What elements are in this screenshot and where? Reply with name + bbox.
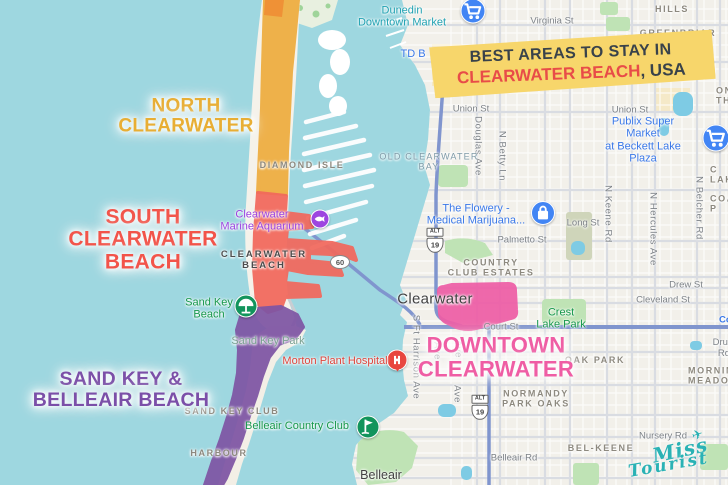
street-court-hwy-label: Cou — [719, 316, 728, 327]
shopping-cart-icon[interactable] — [703, 125, 728, 152]
poi-dunedin-downtown-market[interactable]: Dunedin Downtown Market — [358, 5, 446, 30]
street-ave-fragment-3: Ave — [451, 385, 462, 403]
poi-clearwater-marine-aquarium[interactable]: Clearwater Marine Aquarium — [220, 209, 303, 234]
poi-the-flowery[interactable]: The Flowery - Medical Marijuana... — [427, 203, 525, 228]
city-belleair: Belleair — [360, 468, 402, 482]
poi-crest-lake-park[interactable]: Crest Lake Park — [536, 307, 586, 332]
route-shield-60: 60 — [330, 255, 350, 269]
aquarium-fish-icon[interactable] — [311, 210, 330, 229]
street-belleair-rd: Belleair Rd — [491, 454, 537, 465]
hood-normandy-park-oaks: NORMANDY PARK OAKS — [502, 389, 570, 410]
golf-flag-icon[interactable] — [357, 416, 380, 439]
street-virginia-st: Virginia St — [530, 17, 573, 28]
region-label-sand-key-belleair-beach: SAND KEY & BELLEAIR BEACH — [33, 369, 209, 411]
hood-harbour: HARBOUR — [190, 448, 247, 458]
street-drew-st: Drew St — [669, 281, 703, 292]
street-cleveland-st: Cleveland St — [636, 296, 690, 307]
hood-edge-fragment-on: ON TH — [716, 86, 728, 107]
shopping-cart-icon[interactable] — [461, 0, 486, 24]
hood-edge-fragment-coa: COA P — [710, 194, 728, 215]
street-n-hercules-ave: N Hercules Ave — [647, 192, 658, 266]
region-label-downtown-clearwater: DOWNTOWN CLEARWATER — [418, 333, 574, 380]
hood-edge-fragment-lak: C LAK — [710, 165, 728, 186]
hood-diamond-isle: DIAMOND ISLE — [260, 160, 345, 170]
map-screenshot: BEST AREAS TO STAY IN CLEARWATER BEACH, … — [0, 0, 728, 485]
shopping-bag-icon[interactable] — [531, 201, 555, 225]
street-n-belcher-rd: N Belcher Rd — [693, 176, 704, 240]
poi-td-bank[interactable]: TD B — [400, 48, 425, 60]
region-label-north-clearwater: NORTH CLEARWATER — [118, 97, 253, 138]
route-shield-us-alt-19: ALT19 — [472, 395, 489, 420]
street-n-keene-rd: N Keene Rd — [602, 185, 613, 243]
beach-umbrella-icon[interactable] — [235, 295, 258, 318]
miss-tourist-logo: ✈ Miss Tourist — [620, 424, 724, 482]
poi-sand-key-beach[interactable]: Sand Key Beach — [185, 297, 233, 322]
street-long-st: Long St — [567, 219, 600, 230]
street-union-st-west: Union St — [453, 105, 489, 116]
street-n-betty-ln: N Betty Ln — [496, 131, 507, 181]
city-clearwater: Clearwater — [397, 290, 473, 307]
poi-belleair-country-club[interactable]: Belleair Country Club — [245, 420, 349, 432]
hood-morningside-meadows: MORNINGSIDE MEADOWS — [688, 366, 728, 387]
hospital-icon[interactable] — [387, 350, 408, 371]
route-shield-us-alt-19: ALT19 — [427, 228, 444, 253]
region-overlay-north-cap — [264, 0, 284, 17]
hood-country-club-estates: COUNTRY CLUB ESTATES — [448, 258, 535, 279]
poi-publix-super-market[interactable]: Publix Super Market at Beckett Lake Plaz… — [601, 115, 686, 164]
banner-suffix: , USA — [640, 59, 686, 80]
street-druid-rd: Druid Rd — [713, 338, 728, 360]
region-label-south-clearwater-beach: SOUTH CLEARWATER BEACH — [68, 206, 217, 273]
poi-morton-plant-hospital[interactable]: Morton Plant Hospital — [282, 355, 387, 367]
hood-hills: HILLS — [655, 4, 689, 14]
water-old-clearwater-bay: OLD CLEARWATER BAY — [379, 152, 478, 173]
poi-sand-key-park: Sand Key Park — [231, 335, 304, 347]
street-palmetto-st: Palmetto St — [497, 236, 546, 247]
hood-clearwater-beach: CLEARWATER BEACH — [221, 250, 307, 272]
